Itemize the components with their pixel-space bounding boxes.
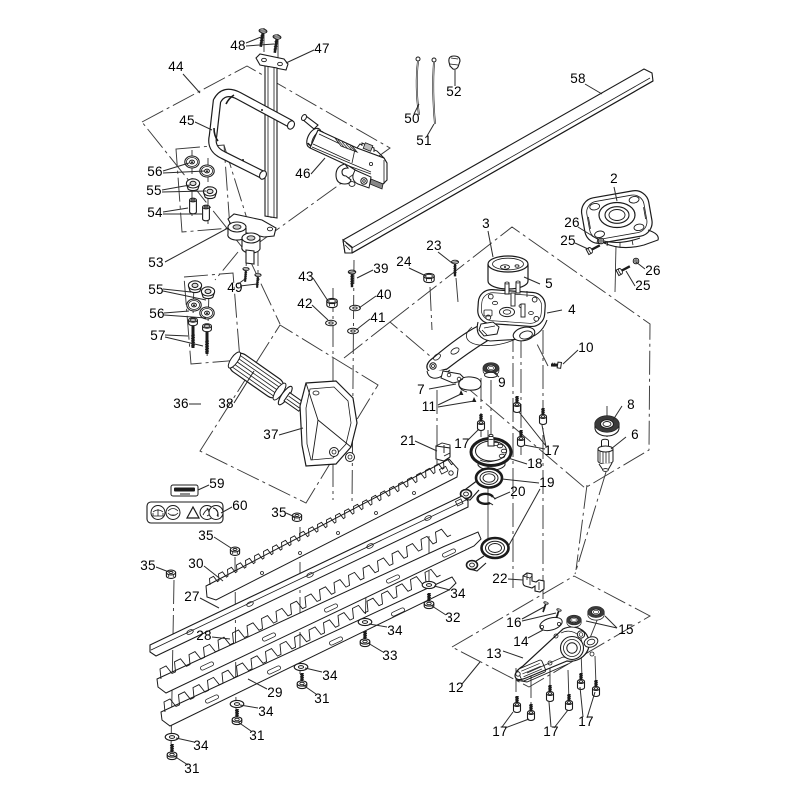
- svg-text:16: 16: [506, 615, 521, 630]
- svg-text:9: 9: [498, 375, 506, 390]
- svg-text:47: 47: [314, 41, 329, 56]
- svg-text:28: 28: [196, 628, 211, 643]
- svg-text:34: 34: [258, 704, 274, 719]
- svg-text:40: 40: [376, 287, 391, 302]
- svg-text:31: 31: [249, 728, 264, 743]
- svg-text:3: 3: [482, 216, 490, 231]
- svg-text:50: 50: [404, 111, 419, 126]
- svg-text:55: 55: [148, 282, 163, 297]
- svg-text:27: 27: [184, 589, 199, 604]
- svg-text:5: 5: [545, 276, 553, 291]
- svg-text:34: 34: [193, 738, 209, 753]
- svg-text:31: 31: [314, 691, 329, 706]
- svg-text:31: 31: [184, 761, 199, 776]
- svg-text:25: 25: [635, 278, 650, 293]
- svg-text:2: 2: [610, 171, 618, 186]
- svg-text:4: 4: [568, 302, 576, 317]
- svg-text:13: 13: [486, 646, 501, 661]
- svg-text:14: 14: [513, 634, 529, 649]
- svg-text:34: 34: [387, 623, 403, 638]
- svg-text:52: 52: [446, 84, 461, 99]
- svg-text:43: 43: [298, 269, 313, 284]
- svg-text:54: 54: [147, 205, 163, 220]
- svg-text:26: 26: [564, 215, 579, 230]
- svg-text:24: 24: [396, 254, 412, 269]
- svg-text:58: 58: [570, 71, 585, 86]
- svg-text:20: 20: [510, 484, 525, 499]
- svg-text:45: 45: [179, 113, 194, 128]
- svg-text:51: 51: [416, 133, 431, 148]
- svg-text:59: 59: [209, 476, 224, 491]
- svg-text:12: 12: [448, 680, 463, 695]
- svg-text:56: 56: [149, 306, 164, 321]
- svg-text:17: 17: [454, 436, 469, 451]
- svg-text:44: 44: [168, 59, 184, 74]
- svg-text:37: 37: [263, 427, 278, 442]
- svg-text:53: 53: [148, 255, 163, 270]
- svg-text:8: 8: [627, 397, 635, 412]
- svg-text:48: 48: [230, 38, 245, 53]
- svg-text:7: 7: [417, 382, 425, 397]
- svg-text:55: 55: [146, 183, 161, 198]
- svg-text:60: 60: [232, 498, 247, 513]
- svg-text:19: 19: [539, 475, 554, 490]
- svg-text:11: 11: [422, 399, 436, 414]
- svg-text:56: 56: [147, 164, 162, 179]
- svg-text:17: 17: [492, 724, 507, 739]
- svg-text:35: 35: [271, 505, 286, 520]
- svg-text:17: 17: [578, 714, 593, 729]
- svg-text:35: 35: [140, 558, 155, 573]
- svg-text:57: 57: [150, 328, 165, 343]
- svg-text:36: 36: [173, 396, 188, 411]
- svg-text:18: 18: [527, 456, 542, 471]
- svg-text:30: 30: [188, 556, 203, 571]
- svg-text:6: 6: [631, 427, 639, 442]
- svg-text:42: 42: [297, 296, 312, 311]
- svg-text:33: 33: [382, 648, 397, 663]
- svg-text:10: 10: [578, 340, 593, 355]
- svg-text:39: 39: [373, 261, 388, 276]
- svg-text:15: 15: [618, 622, 633, 637]
- svg-text:29: 29: [267, 685, 282, 700]
- svg-text:34: 34: [322, 668, 338, 683]
- svg-text:35: 35: [198, 528, 213, 543]
- svg-text:46: 46: [295, 166, 310, 181]
- svg-text:38: 38: [218, 396, 233, 411]
- svg-text:22: 22: [492, 571, 507, 586]
- svg-text:23: 23: [426, 238, 441, 253]
- svg-text:25: 25: [560, 233, 575, 248]
- svg-text:34: 34: [450, 586, 466, 601]
- svg-text:17: 17: [544, 443, 559, 458]
- svg-text:32: 32: [445, 610, 460, 625]
- svg-text:41: 41: [370, 310, 385, 325]
- svg-text:21: 21: [400, 433, 415, 448]
- svg-text:26: 26: [645, 263, 660, 278]
